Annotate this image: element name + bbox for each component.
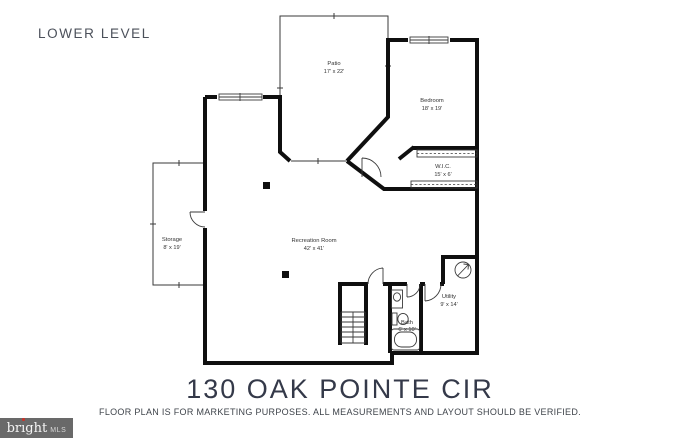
columns: [263, 182, 289, 278]
room-label-bath: Bath: [401, 320, 413, 326]
column: [282, 271, 289, 278]
floor-plan-canvas: Patio 17' x 22' Bedroom 18' x 19' W.I.C.…: [0, 0, 680, 375]
room-label-wic: W.I.C.: [435, 164, 451, 170]
water-heater-icon: [455, 262, 471, 278]
room-label-patio: Patio: [327, 61, 340, 67]
window-icon: [410, 36, 448, 44]
logo-red-dot-icon: [22, 418, 25, 421]
room-label-recreation: Recreation Room: [291, 238, 336, 244]
brightmls-wordmark: brıght: [7, 422, 48, 435]
column: [263, 182, 270, 189]
room-dims-storage: 8' x 19': [163, 245, 180, 251]
floor-plan-page: LOWER LEVEL: [0, 0, 680, 440]
window-icon: [219, 93, 262, 101]
logo-text-pre: br: [7, 422, 22, 435]
room-dims-patio: 17' x 22': [324, 69, 345, 75]
patio-outline: [277, 13, 391, 97]
patio-opening-icon: [291, 158, 346, 164]
disclaimer-text: FLOOR PLAN IS FOR MARKETING PURPOSES. AL…: [0, 407, 680, 417]
room-label-storage: Storage: [162, 237, 182, 243]
storage-outline: [150, 160, 205, 288]
room-label-utility: Utility: [442, 294, 456, 300]
room-dims-bath: 6' x 10': [398, 327, 415, 333]
logo-text-post: ght: [25, 422, 47, 435]
hall-door-arc-icon: [368, 268, 383, 284]
logo-letter-i: ı: [21, 422, 25, 435]
room-dims-bedroom: 18' x 19': [422, 106, 443, 112]
logo-mls-suffix: MLS: [50, 427, 66, 434]
bath-door-arc-icon: [407, 284, 420, 297]
property-address: 130 OAK POINTE CIR: [0, 374, 680, 405]
utility-door-arc-icon: [425, 284, 441, 301]
sink-icon: [392, 290, 403, 308]
doors: [190, 158, 441, 301]
room-dims-recreation: 42' x 41': [304, 246, 325, 252]
room-dims-wic: 15' x 6': [434, 172, 451, 178]
stairs-icon: [341, 312, 365, 343]
storage-door-arc-icon: [190, 212, 205, 227]
brightmls-logo: brıght MLS: [0, 418, 73, 438]
room-dims-utility: 9' x 14': [440, 302, 457, 308]
logo-i-glyph: ı: [21, 421, 25, 436]
storage-door-gap: [203, 211, 208, 228]
room-label-bedroom: Bedroom: [420, 98, 444, 104]
